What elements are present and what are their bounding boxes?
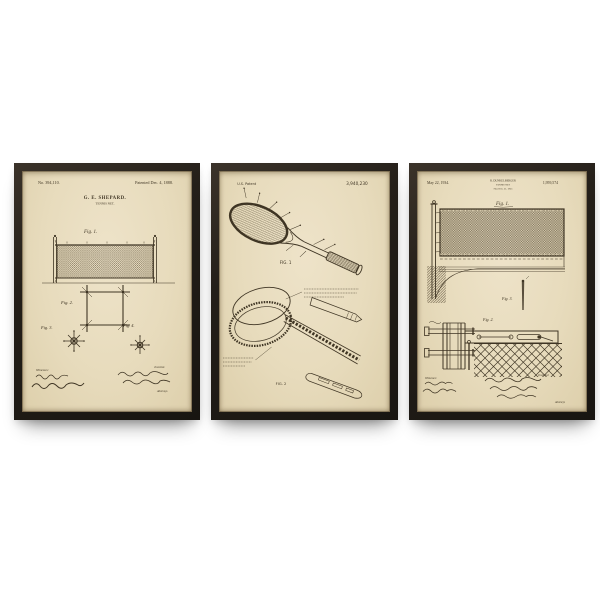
witness-signatures <box>423 382 456 393</box>
patent-print-1934: May 22, 1934. R. DUNKELBERGER TENNIS NET… <box>417 171 587 412</box>
inventor-signatures <box>118 372 170 385</box>
patent-title: TENNIS NET. <box>96 202 115 206</box>
corner-clamp-figure-left <box>63 330 85 352</box>
figure-2-label: Fig. 2. <box>482 317 494 322</box>
inventor-label: Inventor <box>537 373 550 377</box>
witnesses-label: Witnesses: <box>425 377 437 380</box>
figure-1-label: Fig. 1. <box>83 230 97 235</box>
patent-date: Patented Dec. 4, 1888. <box>135 180 173 186</box>
picture-frame-left: No. 394,110. Patented Dec. 4, 1888. G. E… <box>14 163 200 420</box>
filed-date: Filed Feb. 21, 1933 <box>494 188 513 191</box>
patent-header: U.S. Patent <box>237 182 257 186</box>
witness-signatures <box>32 375 84 389</box>
patent-title: TENNIS NET <box>496 184 510 187</box>
inventor-name: R. DUNKELBERGER <box>490 180 516 183</box>
patent-print-1888: No. 394,110. Patented Dec. 4, 1888. G. E… <box>22 171 192 412</box>
clamp-assembly-figure <box>425 323 563 377</box>
patent-number: No. 394,110. <box>38 180 60 186</box>
racket-figure <box>224 185 373 286</box>
patent-date: May 22, 1934. <box>427 181 449 186</box>
figure-4-label: Fig. 4. <box>122 323 135 328</box>
exploded-racket-figure <box>223 281 362 398</box>
figure-2-label: FIG. 2 <box>276 382 287 386</box>
figure-3-label: Fig. 3. <box>501 296 513 301</box>
inventor-signatures <box>485 378 541 399</box>
small-annotation-script <box>429 322 441 324</box>
attorneys-label: Attorneys. <box>156 390 168 393</box>
inventor-label: Inventor. <box>153 365 165 369</box>
patent-print-racket: U.S. Patent 3,940,230 <box>219 171 390 412</box>
figure-2-label: Fig. 2. <box>60 300 73 305</box>
patent-paper-1934: May 22, 1934. R. DUNKELBERGER TENNIS NET… <box>417 171 587 412</box>
net-figure <box>42 235 175 283</box>
stake-pin-figure <box>522 276 529 310</box>
inventor-name: G. E. SHEPARD. <box>84 196 127 201</box>
picture-frame-center: U.S. Patent 3,940,230 <box>211 163 398 420</box>
patent-paper-1888: No. 394,110. Patented Dec. 4, 1888. G. E… <box>22 171 192 412</box>
patent-number: 3,940,230 <box>346 181 368 186</box>
patent-paper-racket: U.S. Patent 3,940,230 <box>219 171 390 412</box>
picture-frame-right: May 22, 1934. R. DUNKELBERGER TENNIS NET… <box>409 163 595 420</box>
product-photo: No. 394,110. Patented Dec. 4, 1888. G. E… <box>0 0 600 600</box>
attorneys-label: Attorneys <box>554 401 565 404</box>
figure-1-label: FIG. 1 <box>280 260 292 265</box>
corner-clamp-figure-right <box>130 335 149 354</box>
figure-3-label: Fig. 3. <box>40 325 53 330</box>
witnesses-label: Witnesses: <box>36 368 49 372</box>
net-post-figure <box>427 201 565 303</box>
figure-1-label: Fig. 1. <box>495 202 509 207</box>
patent-number: 1,959,574 <box>543 181 558 186</box>
